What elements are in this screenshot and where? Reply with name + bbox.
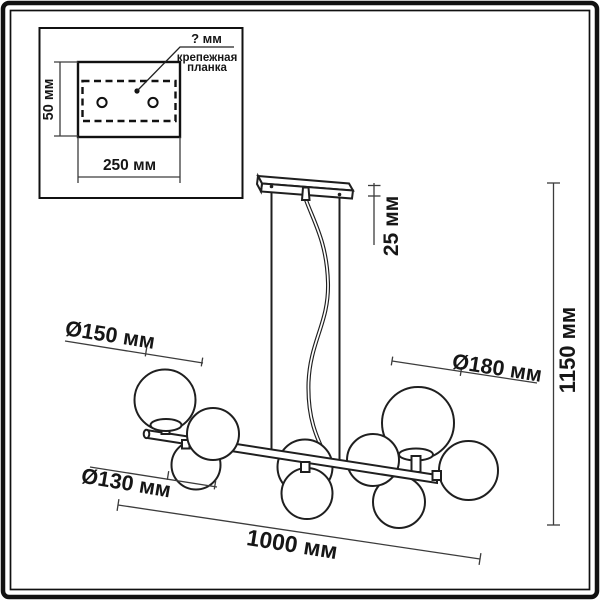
dim-globe-large: Ø150 мм <box>64 316 203 366</box>
canopy-screw-left <box>270 185 274 189</box>
power-cable <box>306 200 328 461</box>
globe-left-large <box>135 370 196 432</box>
globe-right-end-stem <box>433 471 442 480</box>
globe-center-stem <box>301 462 310 472</box>
mount-hole-left <box>97 98 106 107</box>
globe-small-label: Ø130 мм <box>80 464 173 503</box>
total-height-label: 1150 мм <box>555 307 580 393</box>
bar-end-cap <box>144 430 150 438</box>
globe-left-large-cap <box>151 419 182 431</box>
dim-total-height: 1150 мм <box>547 183 580 525</box>
canopy-drop-label: 25 мм <box>380 196 403 256</box>
dim-globe-xlarge: Ø180 мм <box>391 349 543 387</box>
mounting-plate-outline <box>78 62 180 137</box>
plate-width-label: 250 мм <box>103 157 156 174</box>
cable-connector <box>302 188 310 201</box>
globe-center-front <box>282 468 333 519</box>
chandelier-dimension-drawing: ? мм крепежная планка 50 мм 250 мм <box>0 0 600 600</box>
globe-right-mid <box>347 434 399 486</box>
mounting-plate-inset: ? мм крепежная планка 50 мм 250 мм <box>40 28 243 198</box>
total-length-label: 1000 мм <box>245 524 340 564</box>
globe-left-mid <box>187 408 239 460</box>
dim-canopy-drop: 25 мм <box>368 183 403 256</box>
globe-right-large-stem <box>412 456 421 472</box>
globe-xlarge-label: Ø180 мм <box>451 349 544 387</box>
hole-dim-label: ? мм <box>191 31 222 46</box>
plate-label-line2: планка <box>187 62 227 74</box>
fixture-drawing <box>135 176 499 528</box>
mount-hole-right <box>148 98 157 107</box>
canopy-screw-right <box>338 193 342 197</box>
plate-height-label: 50 мм <box>41 79 57 121</box>
